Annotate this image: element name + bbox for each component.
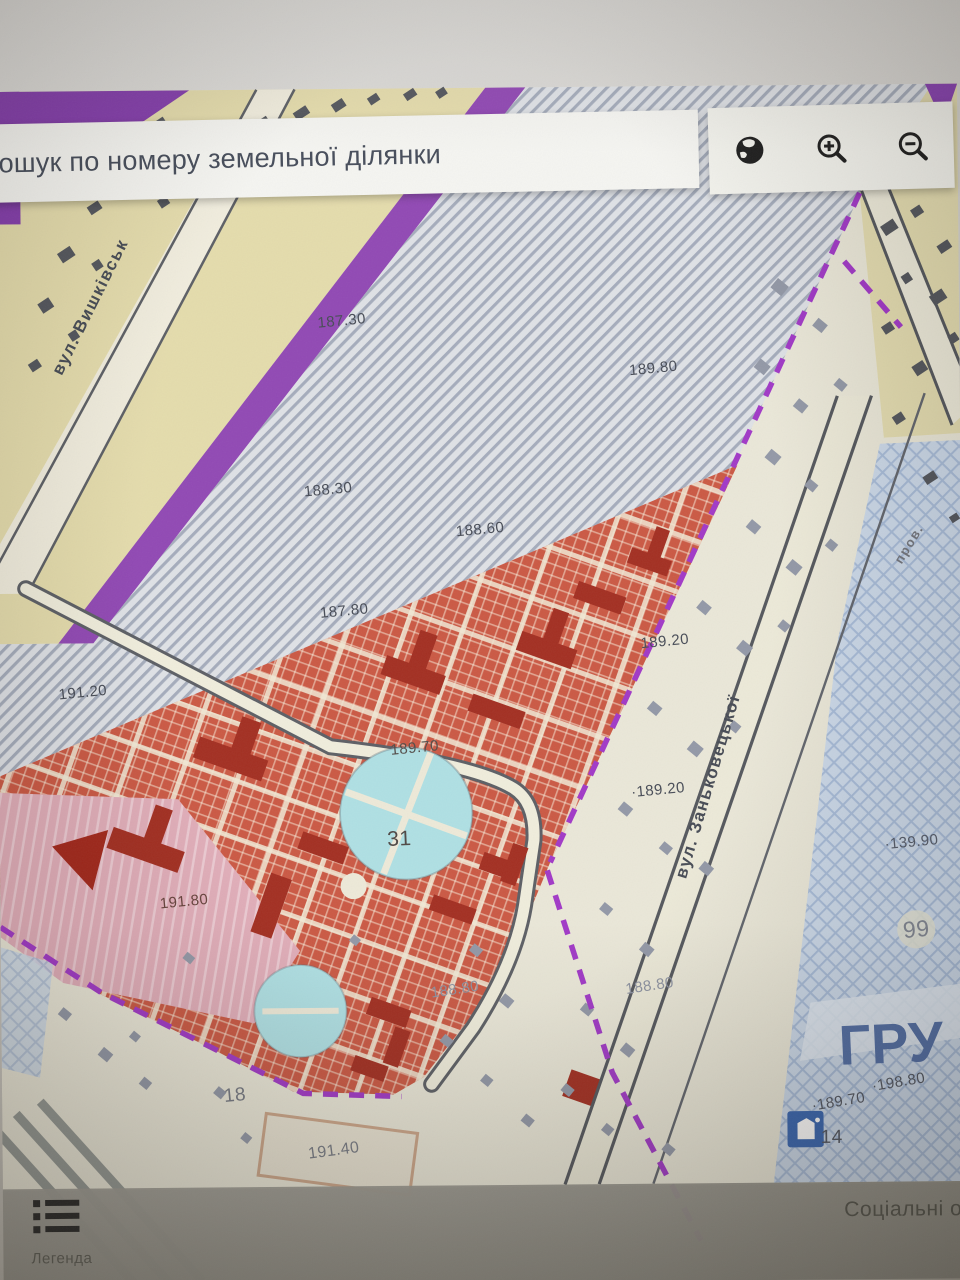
globe-button[interactable] <box>727 128 772 173</box>
bottom-panel: Легенда Соціальні об <box>3 1181 960 1280</box>
zoom-in-button[interactable] <box>808 125 853 170</box>
zoom-in-icon <box>813 129 850 166</box>
monument-icon[interactable] <box>787 1111 823 1147</box>
map-toolbar <box>707 101 954 194</box>
circle-99 <box>897 910 935 948</box>
zoom-out-button[interactable] <box>890 123 935 168</box>
zoom-out-icon <box>894 127 931 164</box>
park-small-circle <box>340 873 366 899</box>
screen-photo: 187.30189.80188.30188.60187.80191.20189.… <box>0 0 960 1280</box>
parcel-search-placeholder: Пошук по номеру земельної ділянки <box>0 139 441 180</box>
legend-list-icon <box>31 1197 84 1238</box>
parcel-search-input[interactable]: Пошук по номеру земельної ділянки <box>0 110 699 203</box>
cadastral-map-app: 187.30189.80188.30188.60187.80191.20189.… <box>0 0 960 1280</box>
legend-button[interactable]: Легенда <box>31 1196 122 1267</box>
legend-label: Легенда <box>32 1250 123 1268</box>
social-objects-label: Соціальні об <box>844 1197 960 1222</box>
globe-icon <box>732 133 767 168</box>
